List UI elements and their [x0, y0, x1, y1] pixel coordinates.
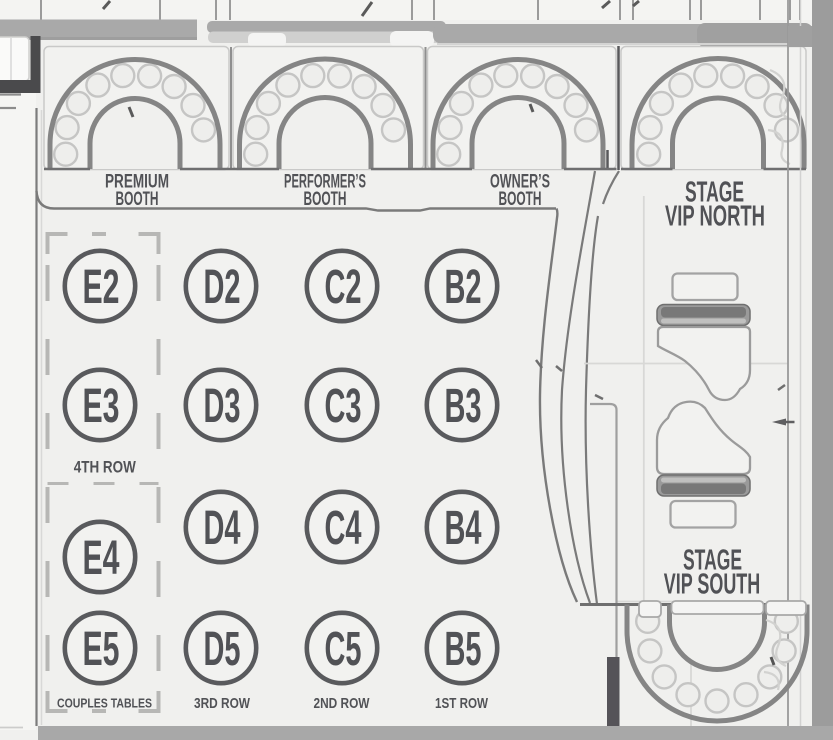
svg-text:C3: C3	[325, 380, 362, 433]
svg-text:D2: D2	[204, 261, 241, 314]
svg-text:C4: C4	[325, 502, 362, 555]
svg-text:D4: D4	[204, 502, 241, 555]
svg-text:3RD ROW: 3RD ROW	[194, 695, 251, 712]
svg-text:C2: C2	[325, 261, 362, 314]
svg-text:BOOTH: BOOTH	[499, 189, 542, 210]
svg-text:E2: E2	[83, 261, 120, 314]
svg-text:BOOTH: BOOTH	[116, 189, 159, 210]
svg-text:1ST ROW: 1ST ROW	[435, 695, 489, 712]
svg-text:B2: B2	[445, 261, 482, 314]
svg-text:B4: B4	[445, 502, 482, 555]
svg-text:E5: E5	[83, 623, 120, 676]
svg-text:COUPLES TABLES: COUPLES TABLES	[57, 697, 152, 711]
svg-text:4TH ROW: 4TH ROW	[74, 459, 136, 477]
svg-text:BOOTH: BOOTH	[304, 189, 347, 210]
svg-text:D3: D3	[204, 380, 241, 433]
svg-text:VIP SOUTH: VIP SOUTH	[664, 569, 761, 601]
svg-text:E3: E3	[83, 380, 120, 433]
svg-text:E4: E4	[83, 532, 120, 585]
svg-text:B5: B5	[445, 623, 482, 676]
svg-text:C5: C5	[325, 623, 362, 676]
svg-text:2ND ROW: 2ND ROW	[314, 695, 371, 712]
svg-text:B3: B3	[445, 380, 482, 433]
svg-text:VIP NORTH: VIP NORTH	[665, 201, 765, 233]
svg-text:D5: D5	[204, 623, 241, 676]
